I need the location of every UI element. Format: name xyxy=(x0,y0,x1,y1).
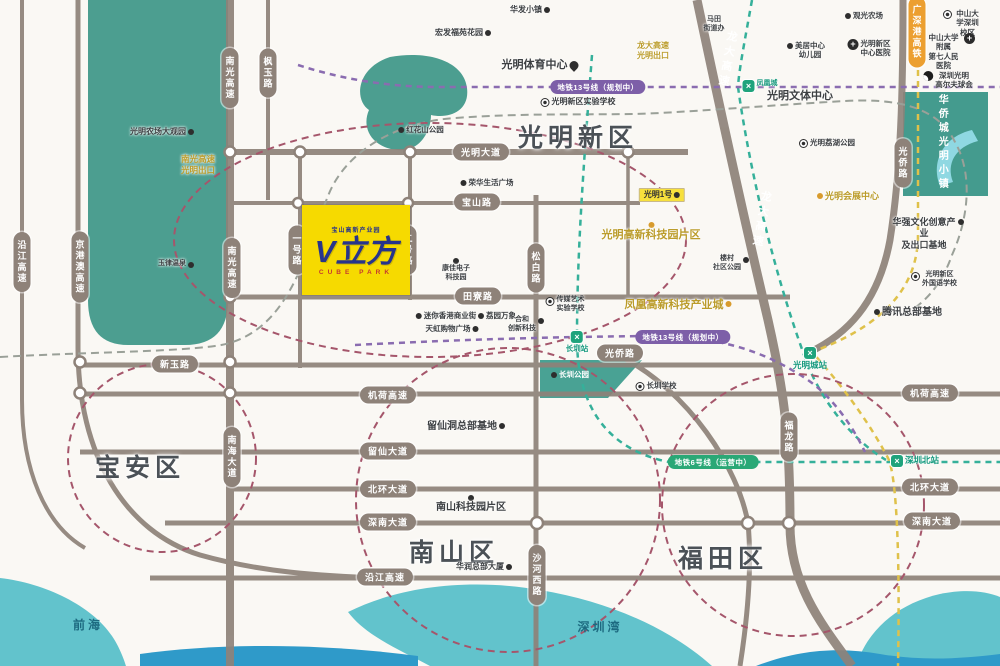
poi-label: 光明高新科技园片区 xyxy=(602,220,701,243)
road-ribbon: 留仙大道 xyxy=(360,443,416,460)
road-ribbon: 南光高速 xyxy=(222,48,239,108)
poi-label: 红花山公园 xyxy=(398,125,444,134)
poi-text: 天虹购物广场 xyxy=(426,324,471,333)
poi-text: 楼村 社区公园 xyxy=(713,255,741,273)
poi-label: 深圳光明 高尔夫球会 xyxy=(923,71,973,90)
dot-icon xyxy=(874,309,880,315)
poi-text: 腾讯总部基地 xyxy=(882,307,942,320)
dot-icon xyxy=(188,129,194,135)
poi-label: ×深圳北站 xyxy=(891,455,939,467)
project-subline: CUBE PARK xyxy=(319,269,393,276)
cross-icon: + xyxy=(964,33,975,44)
poi-text: 红花山公园 xyxy=(406,125,444,134)
road-ribbon: 沿江高速 xyxy=(357,569,413,586)
circ-icon xyxy=(546,297,555,306)
poi-text: 华强文化创意产业 及出口基地 xyxy=(892,217,956,251)
poi-label: 前海 xyxy=(73,618,103,633)
poi-label: 观光农场 xyxy=(845,11,883,20)
dot-icon xyxy=(461,180,467,186)
poi-text: 马田 街道办 xyxy=(704,16,725,34)
dot-icon xyxy=(674,192,680,198)
dot-icon xyxy=(551,372,557,378)
poi-label: 玉律温泉 xyxy=(158,260,194,269)
poi-label: 光明新区 外国语学校 xyxy=(911,271,957,289)
poi-label: 美居中心 幼儿园 xyxy=(787,41,825,60)
dot-icon xyxy=(473,326,479,332)
dot-icon xyxy=(188,262,194,268)
road-ribbon: 松白路 xyxy=(528,244,545,293)
road-ribbon: 深南大道 xyxy=(360,514,416,531)
dot-icon xyxy=(958,219,964,225)
road-ribbon: 福龙路 xyxy=(781,413,798,462)
poi-label: 南山科技园片区 xyxy=(436,493,506,515)
circ-icon xyxy=(799,139,808,148)
metro-line-badge: 地铁6号线（运营中） xyxy=(668,455,759,469)
road-name-label: 龙大高速 xyxy=(748,189,774,251)
poi-label: 深圳湾 xyxy=(577,620,622,635)
road-ribbon: 光侨路 xyxy=(597,345,643,362)
dot-icon xyxy=(499,423,505,429)
road-ribbon: 沙河西路 xyxy=(529,545,546,605)
poi-label: 楼村 社区公园 xyxy=(713,255,749,273)
poi-label: 光明体育中心 xyxy=(502,59,579,73)
poi-text: 长圳公园 xyxy=(559,370,589,379)
poi-text: 玉律温泉 xyxy=(158,260,186,269)
poi-label: 光明文体中心 xyxy=(767,90,833,104)
poi-text: 康佳电子 科技园 xyxy=(442,265,470,283)
road-ribbon: 北环大道 xyxy=(902,479,958,496)
poi-label: ×长圳站 xyxy=(566,331,589,353)
road-ribbon: 宝山路 xyxy=(454,194,500,211)
dot-icon xyxy=(538,318,544,324)
poi-text: 南山科技园片区 xyxy=(436,502,506,515)
dot-icon xyxy=(478,313,484,319)
poi-text: 光明新区 外国语学校 xyxy=(922,271,957,289)
poi-text: 宏发福苑花园 xyxy=(435,28,483,38)
cross-icon: + xyxy=(848,39,859,50)
road-ribbon: 京港澳高速 xyxy=(72,232,89,303)
metro-line-badge: 地铁13号线（规划中） xyxy=(635,330,730,344)
district-label: 宝安区 xyxy=(95,448,185,484)
poi-text: 前海 xyxy=(73,618,103,633)
poi-label: 传媒艺术 实验学校 xyxy=(546,296,585,314)
poi-text: 凤凰城 xyxy=(757,80,778,89)
poi-label: 宏发福苑花园 xyxy=(435,28,491,38)
poi-text: 传媒艺术 实验学校 xyxy=(557,296,585,314)
poi-text: 光明新区实验学校 xyxy=(552,97,616,107)
poi-label: 长圳公园 xyxy=(551,370,589,379)
poi-label: 中山大学附属 第七人民医院+ xyxy=(925,33,975,71)
poi-text: 光明会展中心 xyxy=(825,191,879,202)
circ-icon xyxy=(636,382,645,391)
road-ribbon: 田寮路 xyxy=(455,288,501,305)
poi-label: 凤凰高新科技产业城 xyxy=(625,299,732,313)
project-logo: V立方 xyxy=(315,236,398,267)
label-layer: 光明新区宝安区南山区福田区光明大道宝山路田寮路新玉路光侨路机荷高速留仙大道北环大… xyxy=(0,0,1000,666)
odot-icon xyxy=(648,222,654,228)
road-ribbon: 沿江高速 xyxy=(14,232,31,292)
dot-icon xyxy=(506,564,512,570)
poi-text: 光明农场大观园 xyxy=(130,127,186,137)
pin-icon xyxy=(568,59,581,72)
poi-label: 迷你香港商业街 xyxy=(416,311,477,320)
poi-text: 深圳北站 xyxy=(905,455,939,466)
poi-label: 华润总部大厦 xyxy=(456,562,512,572)
dot-icon xyxy=(743,257,749,263)
poi-label: 光明1号 xyxy=(639,188,685,202)
poi-label: 华发小镇 xyxy=(510,5,550,15)
poi-label: 华侨城光明小镇 xyxy=(935,94,948,192)
poi-text: 深圳光明 高尔夫球会 xyxy=(935,71,973,90)
poi-label: 天虹购物广场 xyxy=(426,324,479,333)
poi-text: 光明荔湖公园 xyxy=(810,138,855,147)
poi-label: 光明会展中心 xyxy=(817,191,879,202)
road-ribbon: 北环大道 xyxy=(360,481,416,498)
poi-label: 腾讯总部基地 xyxy=(874,307,942,320)
road-name-label: 龙大高速 xyxy=(714,29,740,91)
road-ribbon: 广深港高铁 xyxy=(909,0,926,68)
circ-icon xyxy=(943,10,952,19)
poi-text: 合和 创新科技 xyxy=(508,316,536,334)
poi-label: 光明农场大观园 xyxy=(130,127,194,137)
poi-text: 南光高速 光明出口 xyxy=(181,154,215,175)
poi-text: 光明高新科技园片区 xyxy=(602,229,701,243)
poi-text: 观光农场 xyxy=(853,11,883,20)
road-ribbon: 机荷高速 xyxy=(902,385,958,402)
road-ribbon: 南光高速 xyxy=(224,238,241,298)
poi-text: 留仙洞总部基地 xyxy=(427,421,497,434)
poi-text: 中山大学附属 第七人民医院 xyxy=(925,33,962,71)
poi-label: 光明荔湖公园 xyxy=(799,138,855,148)
dot-icon xyxy=(787,43,793,49)
district-label: 光明新区 xyxy=(518,118,638,154)
metro-line-badge: 地铁13号线（规划中） xyxy=(550,80,645,94)
poi-text: 华发小镇 xyxy=(510,5,542,15)
circ-icon xyxy=(541,98,550,107)
poi-text: 长圳学校 xyxy=(647,381,677,390)
poi-text: 迷你香港商业街 xyxy=(424,311,477,320)
poi-text: 凤凰高新科技产业城 xyxy=(625,299,724,313)
poi-label: 南光高速 光明出口 xyxy=(181,154,215,175)
poi-text: 光明体育中心 xyxy=(502,59,568,73)
road-ribbon: 深南大道 xyxy=(904,513,960,530)
poi-label: 华强文化创意产业 及出口基地 xyxy=(892,217,964,251)
station-icon: × xyxy=(743,80,755,92)
dot-icon xyxy=(468,495,474,501)
dot-icon xyxy=(398,127,404,133)
station-icon: × xyxy=(891,455,903,467)
poi-label: +光明新区 中心医院 xyxy=(848,39,891,58)
poi-label: 康佳电子 科技园 xyxy=(442,256,470,283)
odot-icon xyxy=(726,301,732,307)
poi-text: 光明1号 xyxy=(644,190,672,200)
district-label: 福田区 xyxy=(678,539,768,575)
road-ribbon: 新玉路 xyxy=(152,356,198,373)
station-icon: × xyxy=(804,347,816,359)
dot-icon xyxy=(544,7,550,13)
road-ribbon: 光侨路 xyxy=(895,139,912,188)
poi-text: 光明新区 中心医院 xyxy=(861,39,891,58)
circ-icon xyxy=(911,272,920,281)
poi-text: 华侨城光明小镇 xyxy=(935,94,948,192)
poi-label: 荣华生活广场 xyxy=(461,178,514,187)
road-ribbon: 南海大道 xyxy=(224,427,241,487)
poi-text: 长圳站 xyxy=(566,344,589,353)
road-ribbon: 机荷高速 xyxy=(360,387,416,404)
odot-icon xyxy=(817,193,823,199)
poi-label: 留仙洞总部基地 xyxy=(427,421,505,434)
project-topline: 宝山高新产业园 xyxy=(331,225,380,234)
poi-label: 光明新区实验学校 xyxy=(541,97,616,107)
location-map: 光明新区宝安区南山区福田区光明大道宝山路田寮路新玉路光侨路机荷高速留仙大道北环大… xyxy=(0,0,1000,666)
poi-text: 深圳湾 xyxy=(577,620,622,635)
poi-label: 合和 创新科技 xyxy=(508,316,544,334)
poi-text: 华润总部大厦 xyxy=(456,562,504,572)
poi-text: 美居中心 幼儿园 xyxy=(795,41,825,60)
poi-text: 荣华生活广场 xyxy=(469,178,514,187)
poi-label: ×光明城站 xyxy=(793,347,827,371)
station-icon: × xyxy=(571,331,583,343)
poi-label: 长圳学校 xyxy=(636,381,677,391)
road-ribbon: 枫玉路 xyxy=(260,49,277,98)
poi-text: 光明文体中心 xyxy=(767,90,833,104)
poi-label: 龙大高速 光明出口 xyxy=(637,41,669,61)
project-marker: 宝山高新产业园 V立方 CUBE PARK xyxy=(302,205,410,295)
golf-icon xyxy=(923,71,933,81)
dot-icon xyxy=(485,30,491,36)
dot-icon xyxy=(453,258,459,264)
road-ribbon: 光明大道 xyxy=(453,144,509,161)
poi-label: 马田 街道办 xyxy=(704,16,725,34)
poi-text: 龙大高速 光明出口 xyxy=(637,41,669,61)
poi-text: 光明城站 xyxy=(793,360,827,371)
dot-icon xyxy=(845,13,851,19)
dot-icon xyxy=(416,313,422,319)
